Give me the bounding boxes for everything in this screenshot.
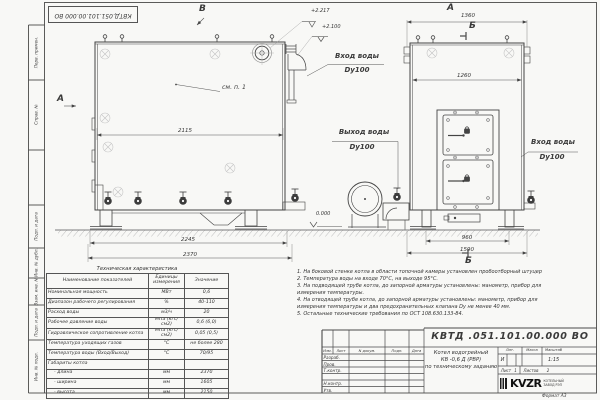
tb-scale-value: 1:15 — [548, 357, 559, 363]
logo-mark-icon — [500, 378, 508, 389]
tt-cell: Температура воды (Вход/Выход) — [47, 349, 149, 359]
tb-col-date: Дата — [412, 349, 421, 353]
note-line: 4. На отводящей трубе котла, до запорной… — [297, 297, 595, 304]
manufacturer-logo: KVZR КОТЕЛЬНЫЙ ЗАВОД РЭП — [500, 376, 595, 391]
elevation-top: +2.217 — [311, 8, 330, 14]
tb-col-sign: Подп. — [392, 349, 403, 353]
tt-cell: МПа (кгс/см2) — [149, 329, 185, 340]
tb-lit-header: Лит. — [506, 348, 514, 352]
tb-scale-header: Масштаб — [545, 348, 562, 352]
dim-960: 960 — [462, 235, 473, 241]
elevation-mid: +2.100 — [322, 24, 341, 30]
dim-1590: 1590 — [460, 247, 474, 253]
product-name-3: по техническому заданию — [425, 364, 497, 370]
fan-blower — [348, 182, 409, 230]
outlet-label: Выход воды — [339, 128, 389, 136]
tb-col-doc: N докум. — [359, 349, 376, 353]
tt-cell: 2370 — [185, 369, 229, 379]
tt-cell: Рабочее давление воды — [47, 318, 149, 329]
tb-mass-header: Масса — [526, 348, 537, 352]
format-label: Формат А3 — [542, 394, 566, 399]
tb-col-izm: Изм. — [323, 349, 331, 353]
tb-row-nkontr: Н.контр. — [324, 381, 343, 386]
tt-cell: - длина — [47, 369, 149, 379]
tt-cell: 20 — [185, 308, 229, 318]
tb-sheets-label: Листов — [524, 368, 539, 373]
inlet-center-label: Вход воды — [335, 52, 379, 60]
top-stamp: КВТД.051.101.00.000 ВО — [48, 6, 138, 23]
dim-2370: 2370 — [183, 252, 197, 258]
note-line: 2. Температура воды на входе 70°С, на вы… — [297, 276, 595, 283]
tt-cell: м3/ч — [149, 308, 185, 318]
note-line: 5. Остальные технические требования по О… — [297, 311, 595, 318]
tt-cell: Гидравлическое сопротивление котла — [47, 329, 149, 340]
tt-cell: 0,6 — [185, 289, 229, 299]
tt-cell: 1605 — [185, 379, 229, 389]
tt-cell: - ширина — [47, 379, 149, 389]
section-marker-b-top: Б — [469, 21, 476, 31]
tt-header: Значение — [185, 274, 229, 289]
tt-cell: мм — [149, 369, 185, 379]
product-name-2: КВ -0,6 Д (РВР) — [441, 357, 481, 363]
tb-row-tkontr: Т.контр. — [324, 368, 342, 373]
inlet-center-dn: Dу100 — [345, 66, 370, 74]
frame-cell-label: Инв. № подл. — [34, 346, 39, 386]
tt-cell: Диапазон рабочего регулирования — [47, 298, 149, 308]
tb-row-razrab: Разраб. — [324, 355, 340, 360]
view-marker-v: В — [199, 4, 206, 14]
note-line: 3. На подводящей трубе котла, до запорно… — [297, 283, 595, 290]
top-flange — [250, 41, 274, 65]
tb-sheets-value: 2 — [547, 368, 550, 373]
see-note-callout: см. п. 1 — [222, 84, 246, 91]
inlet-right-label: Вход воды — [531, 138, 575, 146]
doc-number: КВТД .051.101.00.000 ВО — [431, 331, 588, 342]
technical-notes: 1. На боковой стенке котла в области топ… — [297, 269, 595, 318]
top-stamp-text: КВТД.051.101.00.000 ВО — [49, 7, 137, 22]
tt-cell: 0,05 (0,5) — [185, 329, 229, 340]
drawing-sheet: КВТД.051.101.00.000 ВО Перв. примен. Спр… — [0, 0, 600, 400]
dim-1260: 1260 — [457, 73, 471, 79]
logo-text: KVZR — [510, 377, 541, 390]
tb-sheet-label: Лист — [501, 368, 511, 373]
tt-header: Наименование показателей — [47, 274, 149, 289]
side-base — [410, 210, 524, 229]
front-base — [90, 210, 267, 229]
frame-cell-label: Перв. примен. — [34, 32, 39, 72]
tt-cell: % — [149, 298, 185, 308]
tt-cell: не более 280 — [185, 340, 229, 350]
elevation-ground: 0.000 — [316, 211, 330, 217]
inlet-right-dn: Dу100 — [540, 153, 565, 161]
tt-header: Единицы измерения — [149, 274, 185, 289]
tt-cell — [185, 359, 229, 369]
dim-1360: 1360 — [461, 13, 475, 19]
leaders — [64, 18, 578, 257]
section-marker-b-bottom: Б — [465, 256, 472, 266]
tb-row-utv: Утв. — [324, 388, 333, 393]
dimensions — [88, 20, 527, 262]
note-line: 1. На боковой стенке котла в области топ… — [297, 269, 595, 276]
tt-cell: 70/95 — [185, 349, 229, 359]
tt-cell: 0,6 (6,0) — [185, 318, 229, 329]
tt-cell: Расход воды — [47, 308, 149, 318]
frame-cell-label: Подп. и дата — [34, 302, 39, 342]
view-marker-a-left: А — [57, 94, 64, 104]
boiler-side-view — [404, 36, 535, 229]
tech-table-title: Техническая характеристика — [46, 266, 228, 272]
inlet-elbow — [286, 44, 306, 103]
furnace-doors — [437, 110, 499, 210]
tb-lit-value: И — [501, 357, 505, 363]
tt-cell: мм — [149, 379, 185, 389]
product-name-1: Котел водогрейный — [434, 350, 488, 356]
tt-cell: °С — [149, 340, 185, 350]
tt-cell: - высота — [47, 389, 149, 399]
tt-cell: Габариты котла — [47, 359, 149, 369]
tt-cell: Номинальная мощность — [47, 289, 149, 299]
frame-cell-label: Подп. и дата — [34, 206, 39, 246]
note-line: измерения температуры и два предохраните… — [297, 304, 595, 311]
outlet-dn: Dу100 — [350, 143, 375, 151]
boiler-front-view — [90, 35, 306, 229]
tt-cell: °С — [149, 349, 185, 359]
tt-cell: Температура уходящих газов — [47, 340, 149, 350]
logo-sub-line2: ЗАВОД РЭП — [543, 384, 563, 387]
tb-sheet-value: 1 — [514, 368, 517, 373]
tt-cell: МВт — [149, 289, 185, 299]
frame-cell-label: Справ. № — [34, 95, 39, 135]
tech-table: Техническая характеристика Наименование … — [46, 266, 228, 399]
tt-cell — [149, 359, 185, 369]
view-marker-a-side: А — [447, 3, 454, 13]
dim-2115: 2115 — [178, 128, 192, 134]
tt-cell: МПа (кгс/см2) — [149, 318, 185, 329]
tt-cell: 40-110 — [185, 298, 229, 308]
tt-cell: 2150 — [185, 389, 229, 399]
tb-col-list: Лист — [336, 349, 345, 353]
dim-2245: 2245 — [181, 237, 195, 243]
note-line: измерения температуры. — [297, 290, 595, 297]
tt-cell: мм — [149, 389, 185, 399]
tb-row-prov: Пров. — [324, 362, 336, 367]
